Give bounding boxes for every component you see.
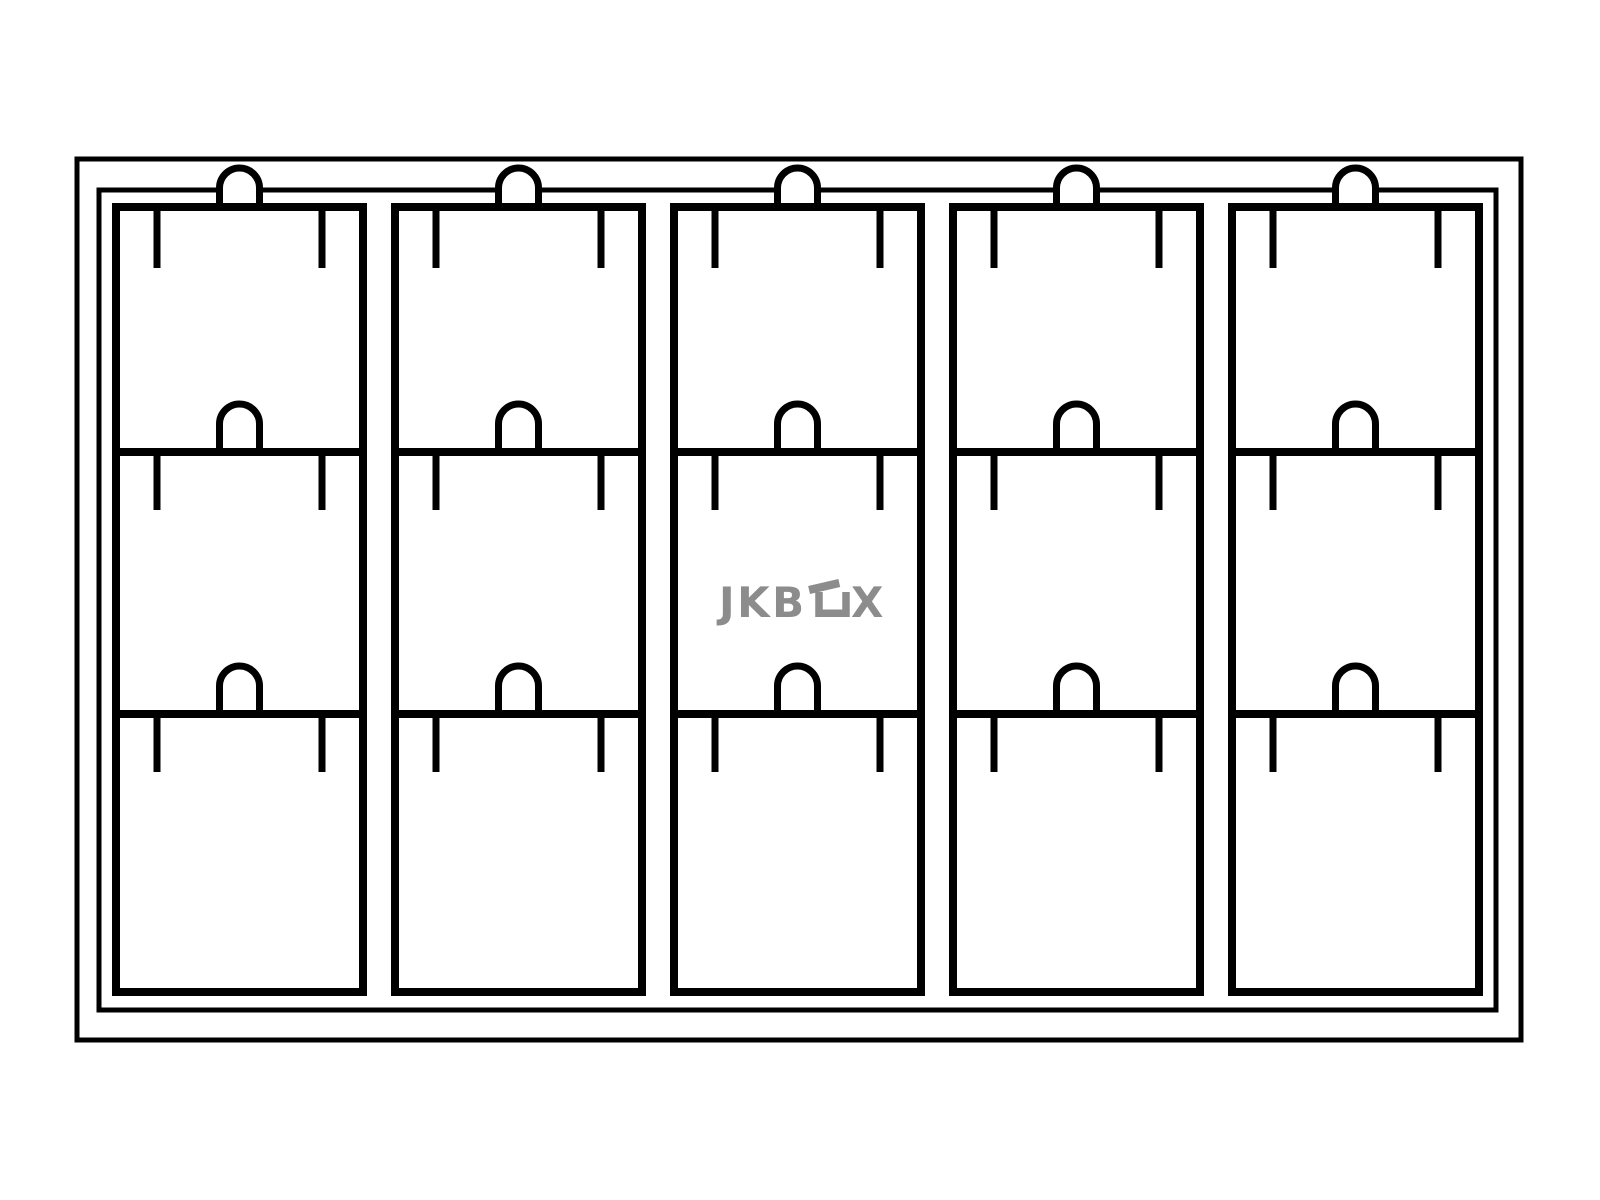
jkbox-logo: JKB X: [716, 578, 886, 627]
compartment-column-4: [953, 168, 1200, 992]
tray-diagram-page: JKB X: [0, 0, 1600, 1200]
compartment-column-5: [1232, 168, 1479, 992]
logo-text-x: X: [851, 578, 886, 627]
jewelry-tray-line-drawing: JKB X: [0, 0, 1600, 1200]
compartment-column-1: [116, 168, 363, 992]
logo-text-jkb: JKB: [716, 578, 807, 627]
compartment-column-2: [395, 168, 642, 992]
